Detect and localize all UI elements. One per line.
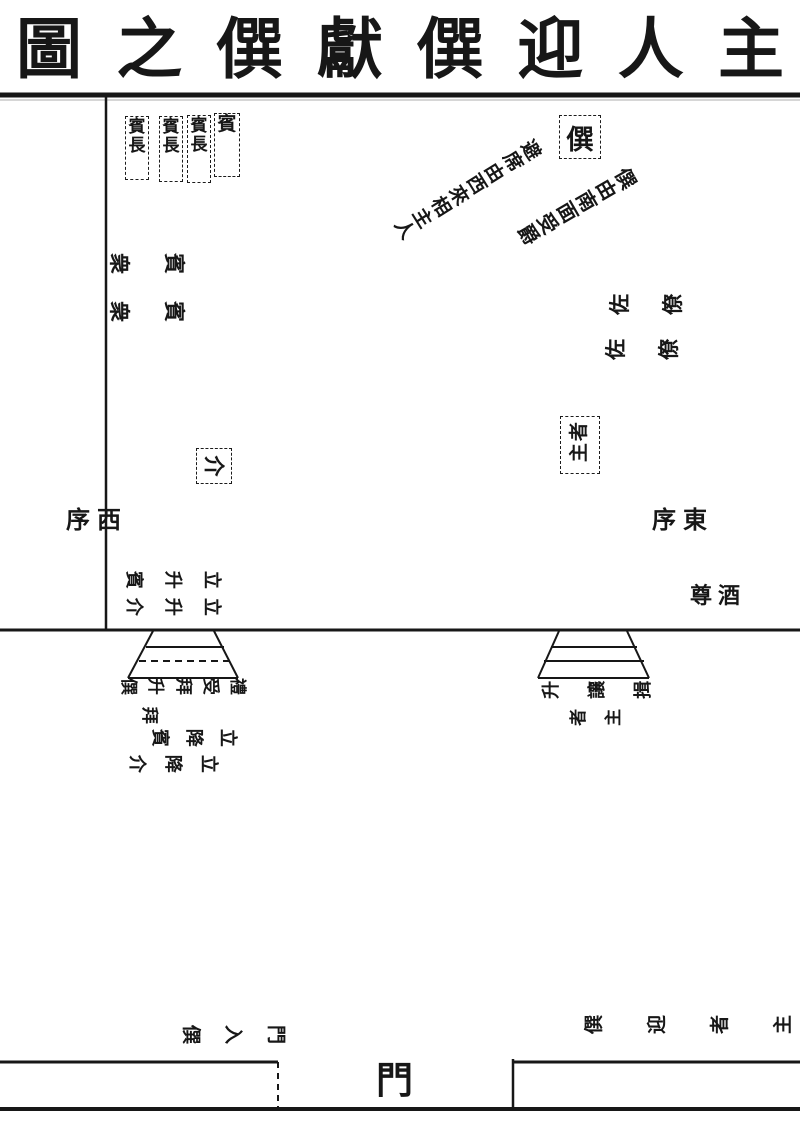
box-guest-elder-3: 賓長 (125, 116, 149, 180)
box-guest-elder-2: 賓長 (159, 116, 183, 182)
label-aides-2: 佐僚 (606, 338, 680, 361)
west-stairs (128, 631, 238, 678)
ritual-diagram-page: 圖之僎獻僎迎人主 賓長 賓長 賓長 賓 僎 避席由西來相主人 僎由南面受爵 衆賓… (0, 0, 800, 1126)
label-guest-ascends-stands: 賓升立 (124, 570, 220, 590)
label-zhuan-ascends-rite: 僎升拜受禮 (119, 677, 245, 696)
label-crowd-guests-1: 衆賓 (108, 252, 184, 275)
box-zhuan: 僎 (559, 115, 601, 159)
label-east-wall: 序東 (652, 508, 714, 534)
box-host: 者主 (560, 416, 600, 474)
label-bow: 拜 (140, 706, 162, 725)
label-host-welcomes-zhuan: 僎迎者主 (586, 1014, 794, 1035)
east-stairs (538, 631, 649, 678)
box-intermediary: 介 (196, 448, 232, 484)
label-zhuan-enters-gate: 僎入門 (180, 1024, 284, 1045)
diagram-lines (0, 0, 800, 1126)
box-guest: 賓 (214, 113, 240, 177)
page-title: 圖之僎獻僎迎人主 (0, 8, 800, 94)
label-wine-stand: 尊酒 (690, 584, 746, 608)
annotation-zhuan-path-2: 僎由南面受爵 (512, 163, 640, 251)
label-west-wall: 序西 (66, 508, 128, 534)
label-guest-descends-stands: 賓降立 (150, 728, 236, 748)
label-aides-1: 佐僚 (610, 293, 684, 316)
label-gate: 門 (376, 1062, 413, 1103)
label-bow-yield-ascend: 升讓揖 (543, 680, 653, 700)
label-host-2: 者主 (571, 708, 623, 727)
label-intermediary-descends-stands: 介降立 (127, 754, 217, 774)
box-guest-elder-1: 賓長 (187, 115, 211, 183)
label-intermediary-ascends-stands: 介升立 (124, 597, 220, 617)
label-crowd-guests-2: 衆賓 (108, 300, 184, 323)
